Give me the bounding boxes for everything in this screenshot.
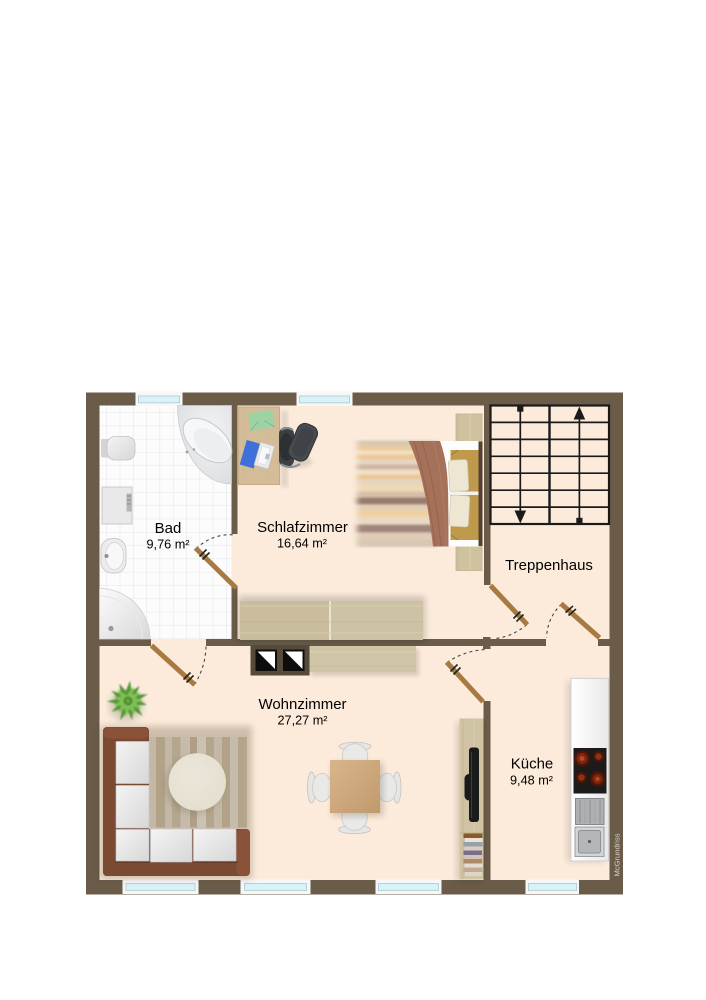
svg-text:9,76 m²: 9,76 m² (146, 538, 189, 552)
svg-text:16,64 m²: 16,64 m² (277, 537, 327, 551)
svg-text:Treppenhaus: Treppenhaus (505, 557, 593, 574)
svg-text:Küche: Küche (511, 756, 554, 773)
svg-text:McGrundriss: McGrundriss (613, 833, 622, 876)
svg-text:Bad: Bad (155, 520, 182, 537)
svg-text:9,48 m²: 9,48 m² (510, 774, 553, 788)
svg-text:Schlafzimmer: Schlafzimmer (257, 519, 348, 536)
svg-text:27,27 m²: 27,27 m² (277, 714, 327, 728)
svg-text:Wohnzimmer: Wohnzimmer (258, 696, 346, 713)
